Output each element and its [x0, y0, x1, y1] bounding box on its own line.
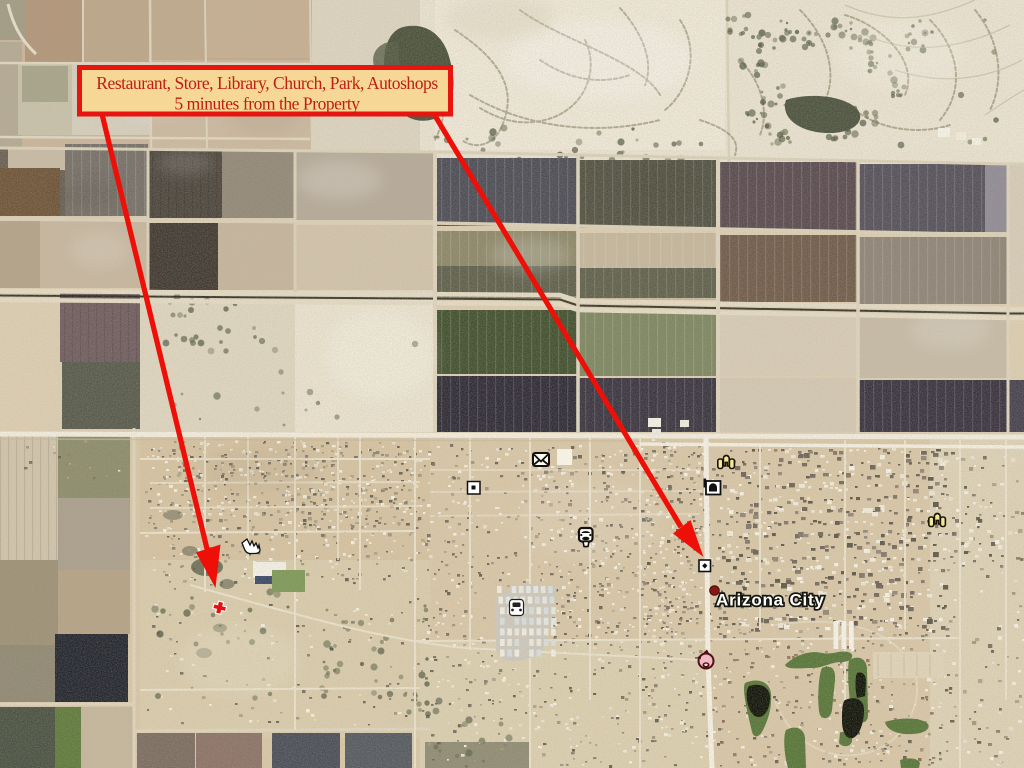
svg-text:5 minutes from the Property: 5 minutes from the Property: [174, 94, 360, 114]
svg-text:Restaurant, Store, Library, Ch: Restaurant, Store, Library, Church, Park…: [96, 73, 438, 93]
svg-text:Arizona City: Arizona City: [716, 591, 825, 610]
